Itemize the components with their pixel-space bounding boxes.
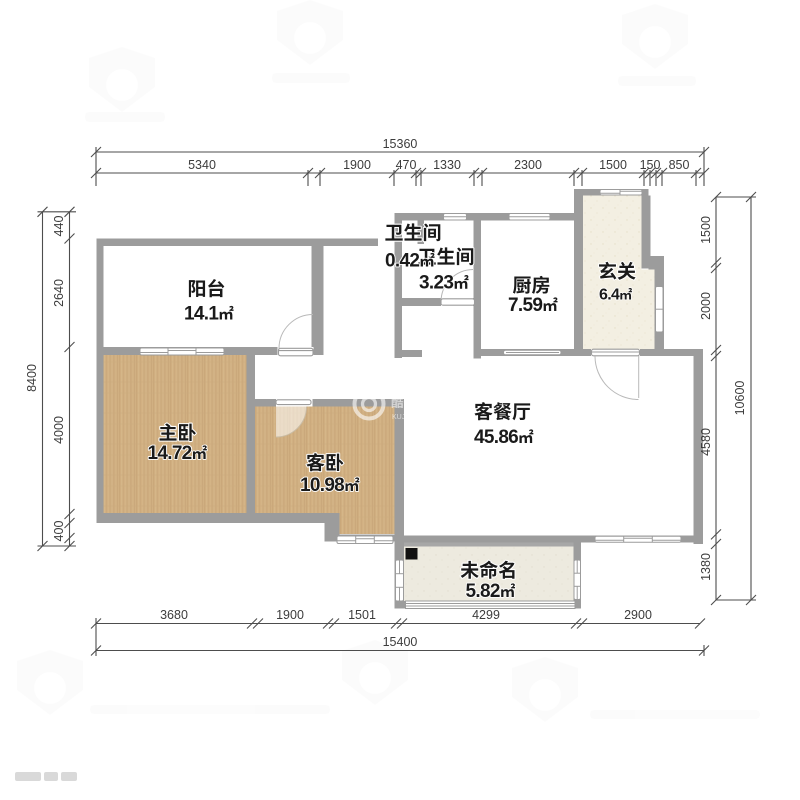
svg-text:5340: 5340 <box>188 158 216 172</box>
svg-text:1501: 1501 <box>348 608 376 622</box>
svg-text:6.4: 6.4 <box>599 287 620 304</box>
svg-text:150: 150 <box>640 158 661 172</box>
svg-text:1380: 1380 <box>699 553 713 581</box>
svg-text:14.1: 14.1 <box>184 304 219 325</box>
svg-text:3680: 3680 <box>160 608 188 622</box>
svg-text:1500: 1500 <box>699 216 713 244</box>
svg-text:2000: 2000 <box>699 292 713 320</box>
svg-text:440: 440 <box>52 216 66 237</box>
svg-text:850: 850 <box>669 158 690 172</box>
svg-text:15360: 15360 <box>383 137 418 151</box>
svg-text:3.23: 3.23 <box>419 273 453 294</box>
svg-text:10.98: 10.98 <box>300 475 344 496</box>
svg-text:8400: 8400 <box>25 364 39 392</box>
svg-text:14.72: 14.72 <box>148 443 192 464</box>
svg-text:5.82: 5.82 <box>466 581 500 602</box>
svg-text:15400: 15400 <box>383 635 418 649</box>
svg-text:1330: 1330 <box>433 158 461 172</box>
svg-text:1500: 1500 <box>599 158 627 172</box>
svg-text:4580: 4580 <box>699 428 713 456</box>
svg-text:2640: 2640 <box>52 279 66 307</box>
svg-text:4299: 4299 <box>472 608 500 622</box>
svg-text:2300: 2300 <box>514 158 542 172</box>
svg-text:470: 470 <box>396 158 417 172</box>
svg-text:45.86: 45.86 <box>474 427 518 448</box>
svg-text:7.59: 7.59 <box>508 295 542 316</box>
svg-text:4000: 4000 <box>52 416 66 444</box>
svg-text:KUJIALE.COM: KUJIALE.COM <box>392 414 439 421</box>
svg-text:0.42: 0.42 <box>385 251 419 272</box>
svg-text:1900: 1900 <box>343 158 371 172</box>
svg-text:1900: 1900 <box>276 608 304 622</box>
svg-text:10600: 10600 <box>733 381 747 416</box>
svg-text:2900: 2900 <box>624 608 652 622</box>
svg-text:400: 400 <box>52 521 66 542</box>
